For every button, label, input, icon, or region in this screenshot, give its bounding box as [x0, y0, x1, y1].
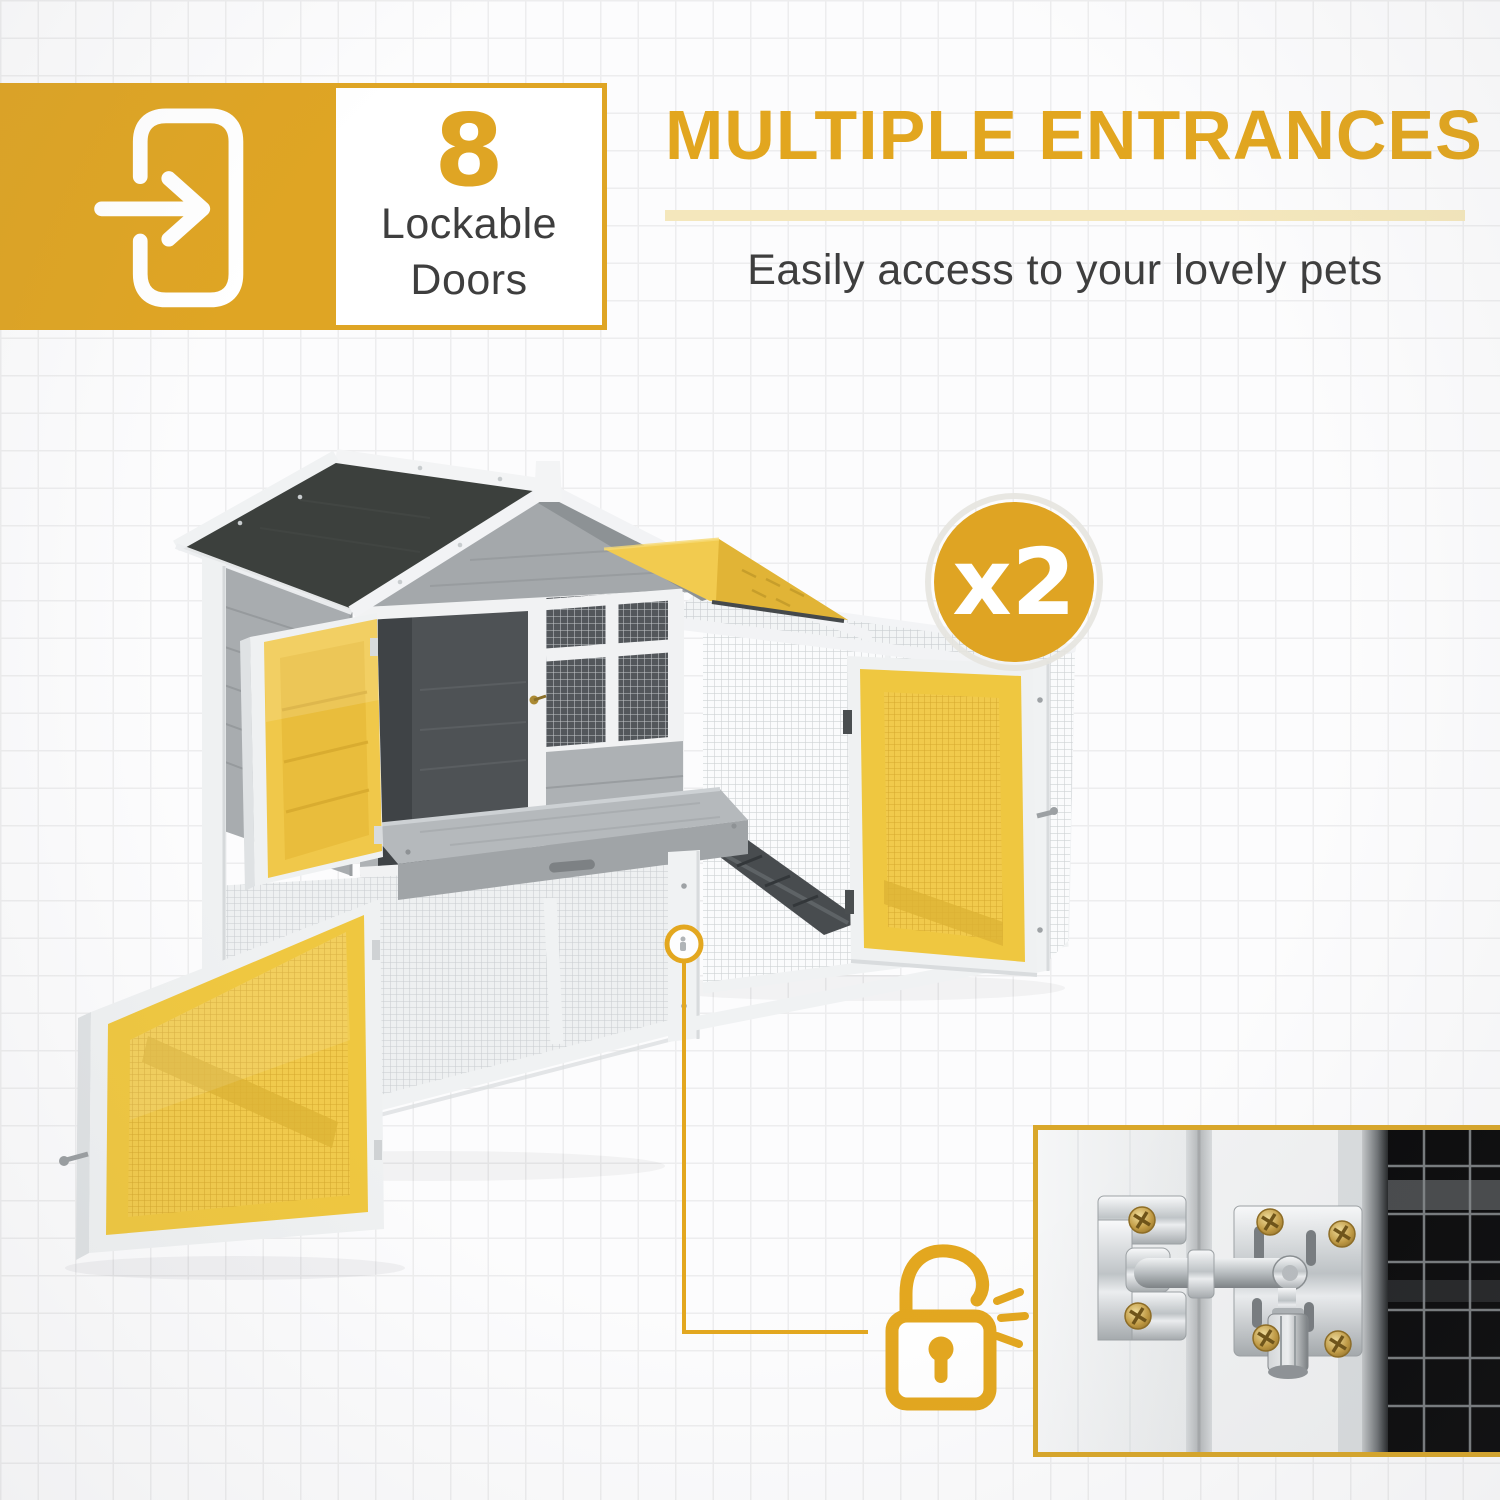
- ridge-apex-cap: [534, 461, 562, 502]
- door-count-label-line1: Lockable: [381, 197, 557, 253]
- page-title: MULTIPLE ENTRANCES: [665, 100, 1465, 170]
- door-enter-arrow-icon: [71, 92, 261, 322]
- multiplier-label: x2: [952, 529, 1075, 636]
- page-subtitle: Easily access to your lovely pets: [665, 246, 1465, 295]
- feature-badge: 8 Lockable Doors: [0, 83, 607, 330]
- upper-left-door-highlighted: [240, 613, 383, 891]
- run-right-end: [1048, 652, 1075, 961]
- lockable-latch-closeup-photo: [1033, 1125, 1500, 1457]
- title-underline: [665, 210, 1465, 221]
- feature-badge-text-box: 8 Lockable Doors: [331, 83, 607, 330]
- header: MULTIPLE ENTRANCES Easily access to your…: [665, 100, 1465, 295]
- click-dashes: [997, 1292, 1025, 1344]
- run-front-mesh-door-highlighted: [843, 656, 1058, 975]
- multiplier-badge: x2: [928, 496, 1100, 668]
- door-count-label-line2: Doors: [410, 253, 527, 309]
- feature-badge-icon-box: [0, 83, 331, 330]
- door-count: 8: [434, 105, 504, 197]
- latch-photo-render: [1038, 1130, 1500, 1452]
- padlock-unlocked-icon: [892, 1251, 1025, 1404]
- product-infographic: x2 8 Lockable Doors MULTIPLE ENTRANCES E…: [0, 0, 1500, 1500]
